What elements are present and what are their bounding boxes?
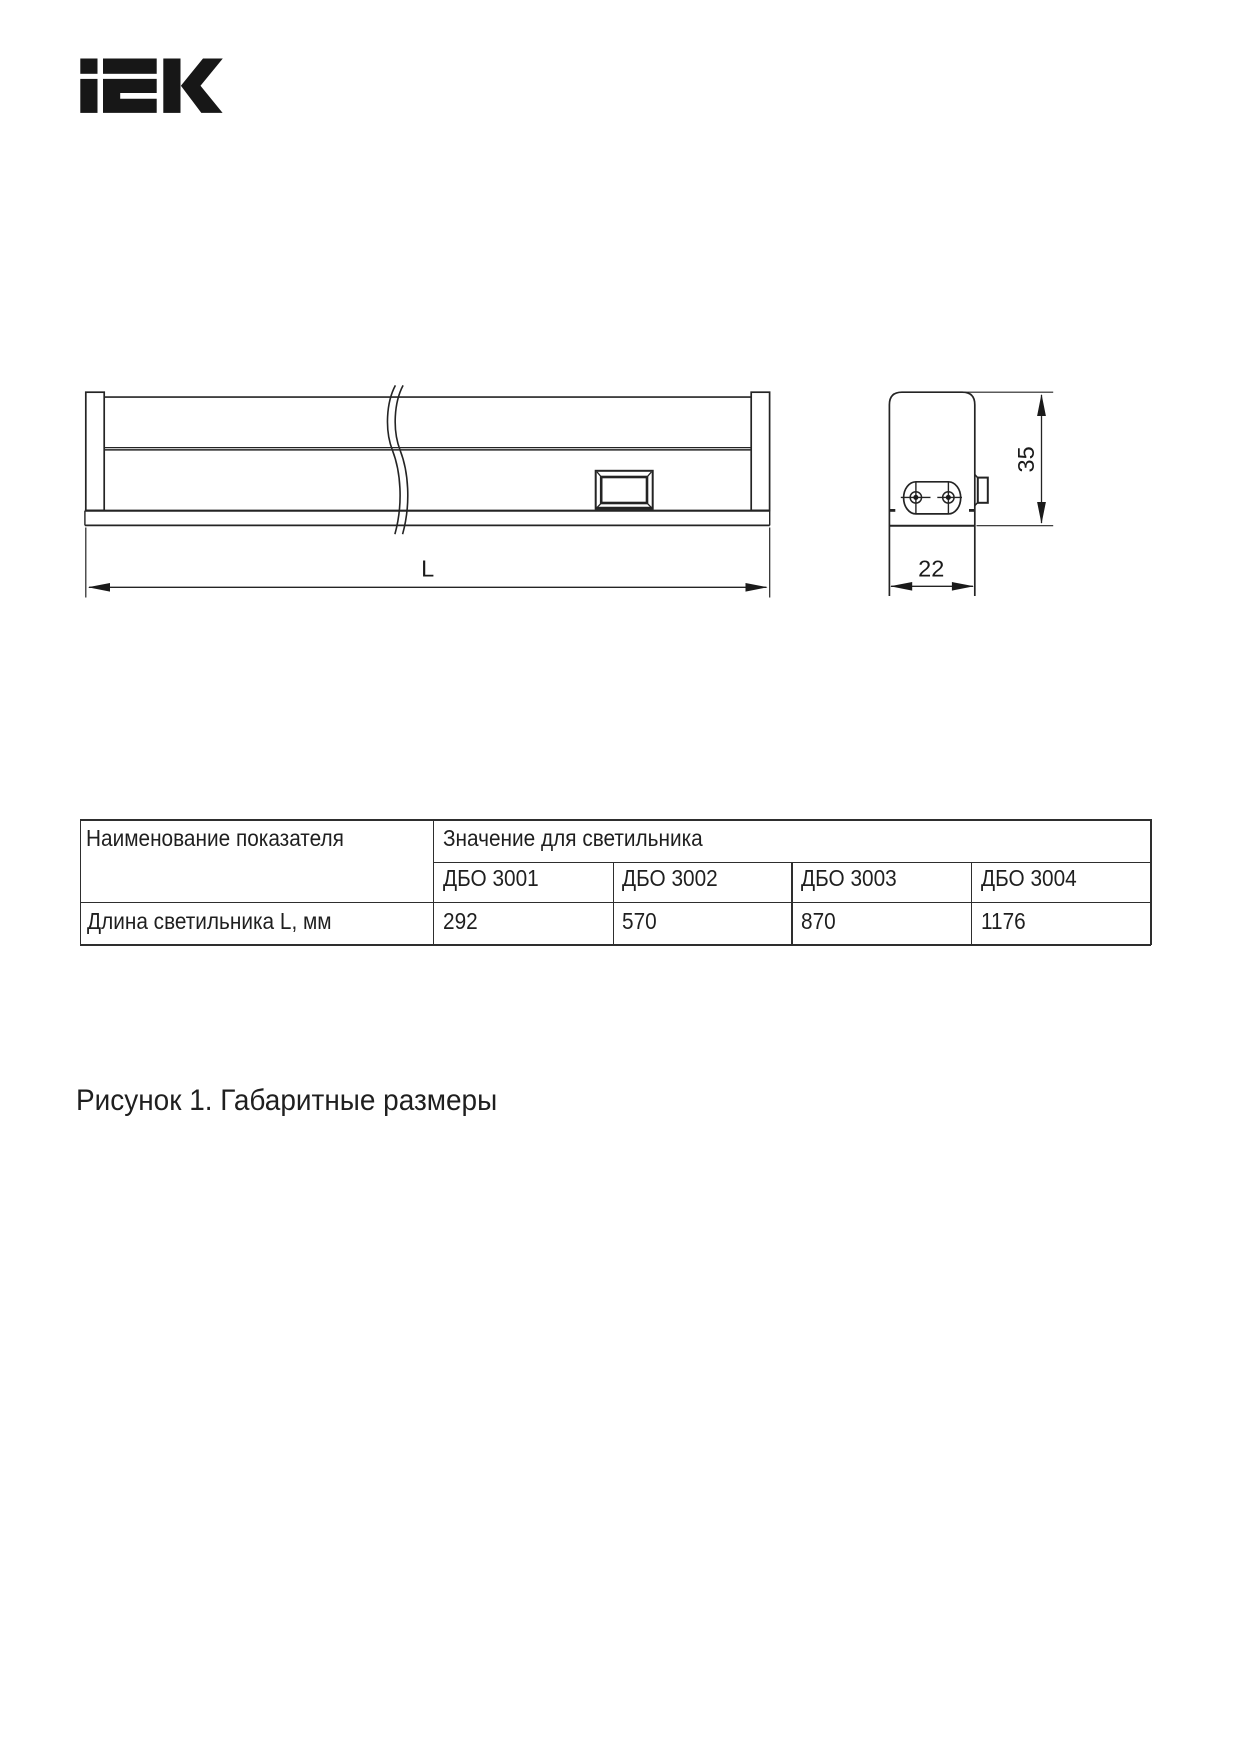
svg-text:L: L [421,555,434,581]
svg-text:22: 22 [918,555,944,581]
svg-text:35: 35 [1013,446,1039,472]
